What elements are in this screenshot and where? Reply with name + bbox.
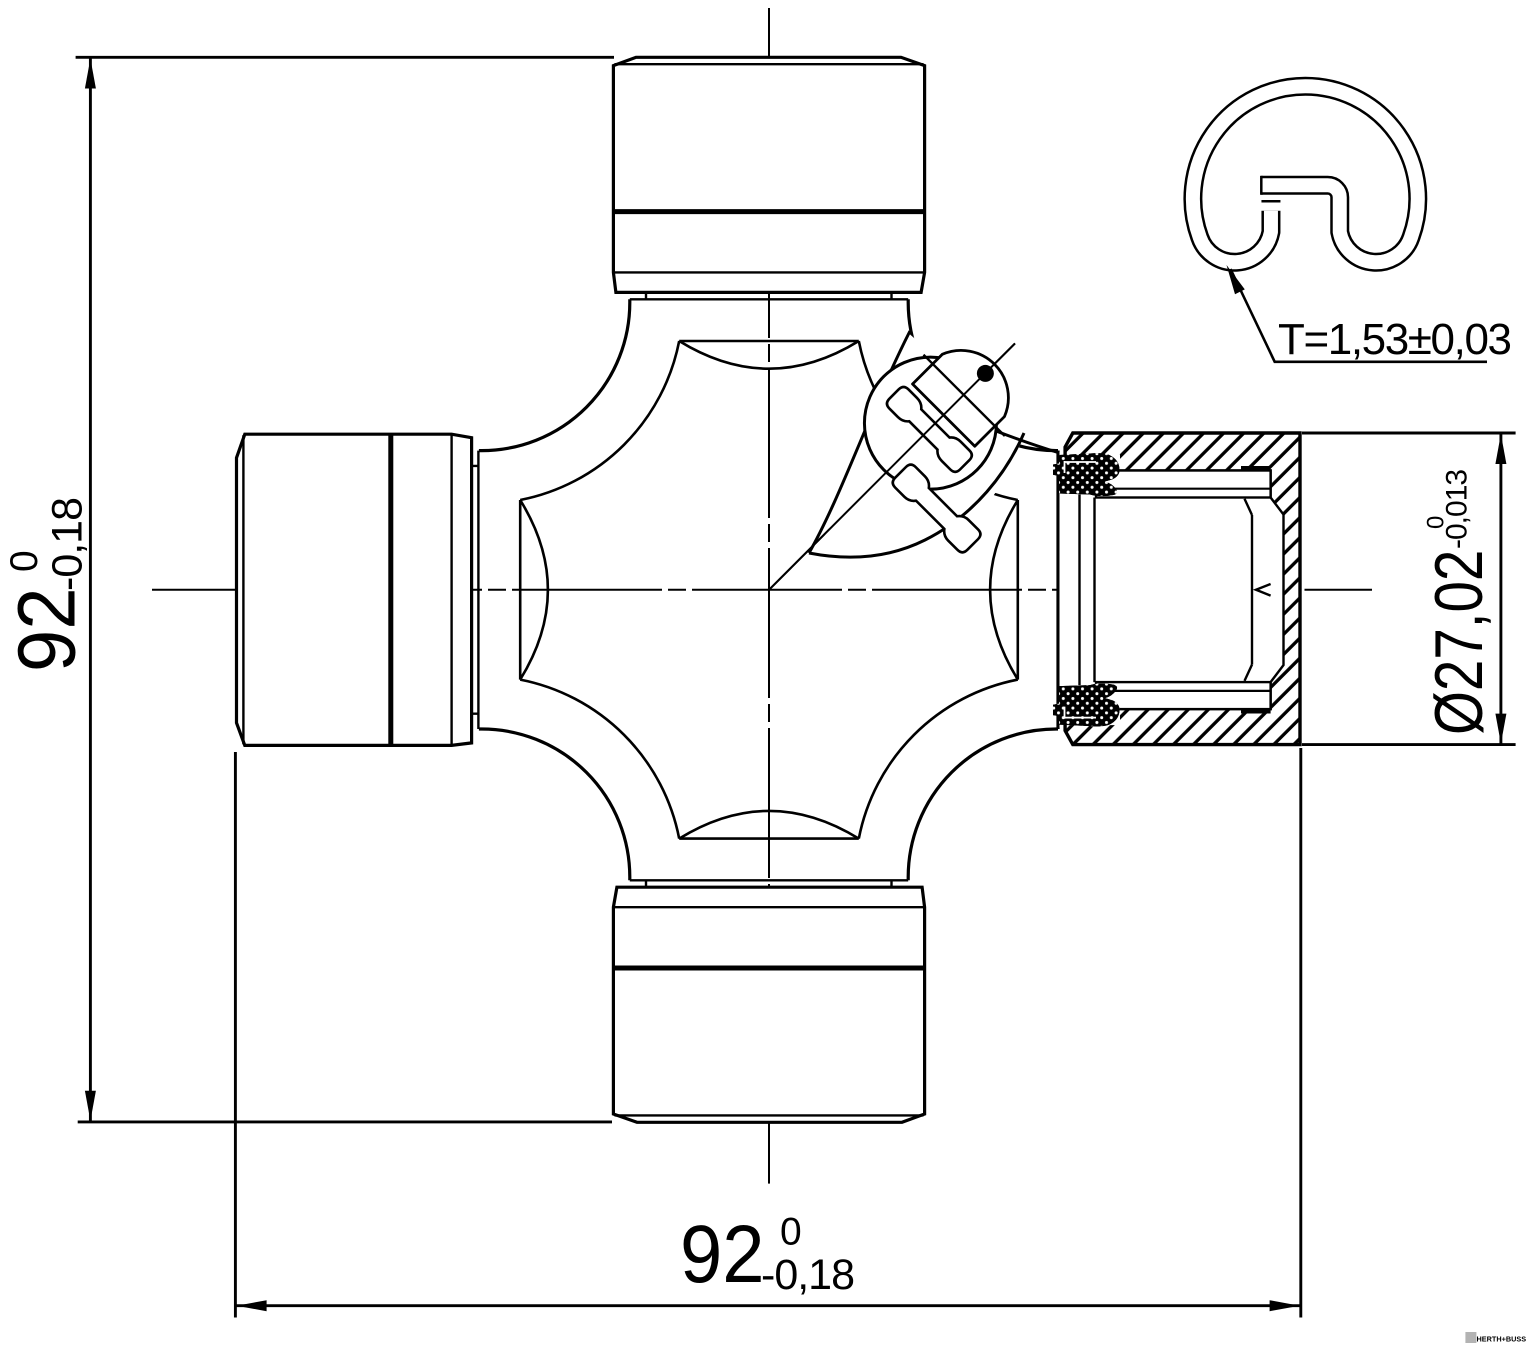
svg-text:0: 0	[780, 1211, 802, 1254]
svg-text:Ø27,02: Ø27,02	[1422, 550, 1497, 735]
svg-text:-0,013: -0,013	[1441, 470, 1474, 549]
svg-text:T=1,53±0,03: T=1,53±0,03	[1278, 315, 1511, 364]
svg-text:HERTH+BUSS: HERTH+BUSS	[1477, 1335, 1527, 1344]
svg-text:0: 0	[3, 550, 46, 572]
svg-text:-0,18: -0,18	[43, 498, 91, 591]
svg-text:92: 92	[680, 1207, 765, 1299]
svg-text:92: 92	[0, 587, 92, 672]
svg-text:-0,18: -0,18	[761, 1251, 854, 1299]
